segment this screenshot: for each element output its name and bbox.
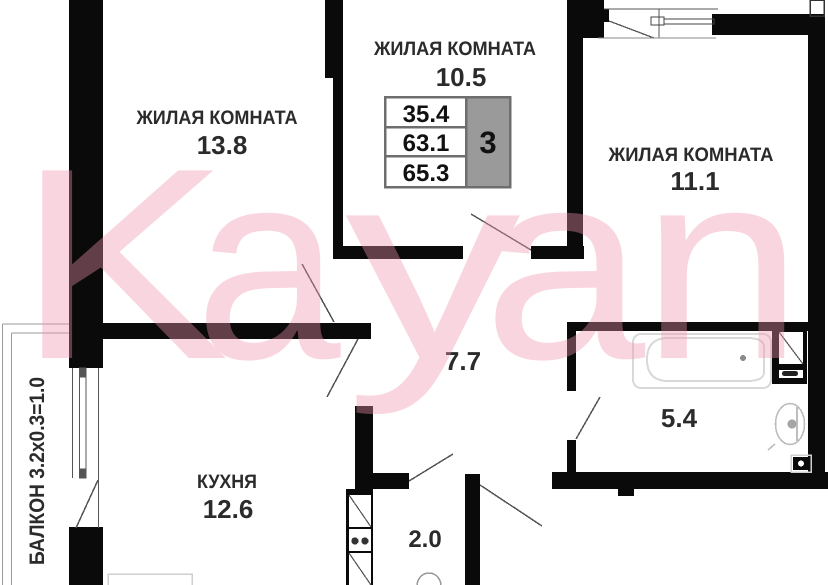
svg-text:КУХНЯ: КУХНЯ xyxy=(197,471,257,493)
svg-text:n: n xyxy=(641,115,803,416)
svg-text:12.6: 12.6 xyxy=(203,494,254,524)
svg-text:ЖИЛАЯ КОМНАТА: ЖИЛАЯ КОМНАТА xyxy=(373,38,536,60)
svg-text:2.0: 2.0 xyxy=(408,526,441,553)
svg-text:a: a xyxy=(195,115,342,416)
svg-text:a: a xyxy=(483,115,647,416)
svg-text:10.5: 10.5 xyxy=(436,62,487,92)
